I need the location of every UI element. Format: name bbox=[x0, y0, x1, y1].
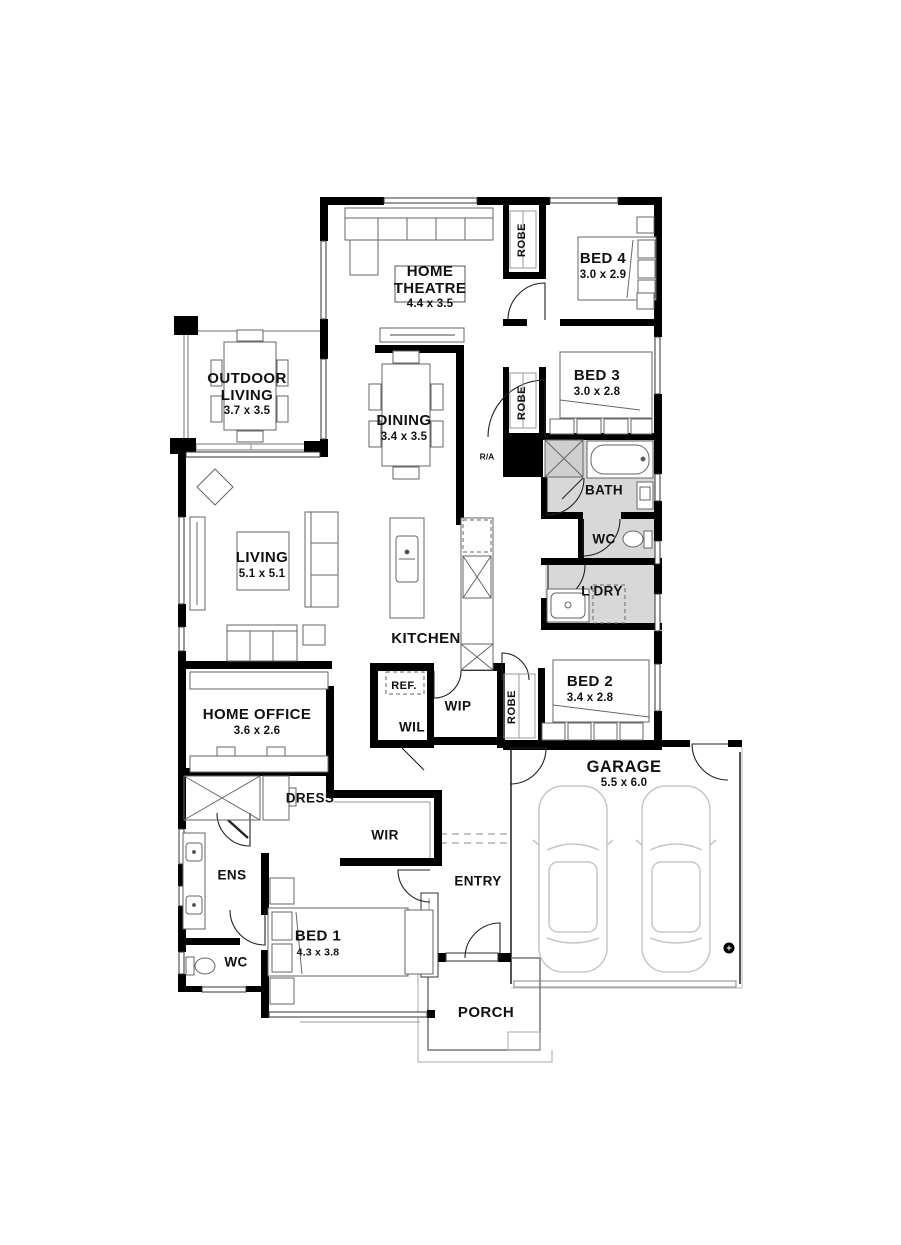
room-label-ens: ENS bbox=[218, 869, 247, 884]
room-label-bed2: BED 23.4 x 2.8 bbox=[567, 674, 614, 704]
room-label-wc2: WC bbox=[224, 956, 247, 971]
room-label-home-theatre: HOME THEATRE 4.4 x 3.5 bbox=[394, 264, 467, 311]
floor-plan-linework bbox=[0, 0, 901, 1245]
room-label-home-office: HOME OFFICE3.6 x 2.6 bbox=[203, 707, 312, 737]
floor-plan-canvas: HOME THEATRE 4.4 x 3.5 BED 43.0 x 2.9 BE… bbox=[0, 0, 901, 1245]
room-label-porch: PORCH bbox=[458, 1005, 514, 1022]
room-label-wc: WC bbox=[592, 533, 615, 548]
room-label-ref: REF. bbox=[391, 680, 416, 692]
wip-door bbox=[434, 671, 461, 698]
room-label-ldry: L'DRY bbox=[581, 585, 622, 600]
room-label-robe-3: ROBE bbox=[506, 690, 518, 724]
bed2-door bbox=[502, 653, 529, 680]
bed4-door bbox=[508, 283, 545, 320]
ens-shower-door bbox=[228, 820, 248, 838]
furniture bbox=[183, 208, 656, 1004]
room-label-robe-1: ROBE bbox=[516, 223, 528, 257]
room-label-wil: WIL bbox=[399, 721, 425, 736]
room-label-wip: WIP bbox=[445, 700, 472, 715]
outdoor-post-icon bbox=[174, 316, 198, 335]
ens-door bbox=[217, 813, 250, 846]
room-label-robe-2: ROBE bbox=[516, 386, 528, 420]
room-label-outdoor-living: OUTDOOR LIVING 3.7 x 3.5 bbox=[207, 371, 286, 418]
room-label-bed1: BED 14.3 x 3.8 bbox=[295, 929, 341, 958]
return-air-label: R/A bbox=[480, 452, 495, 461]
wc2-toilet bbox=[186, 957, 215, 975]
front-door-threshold bbox=[446, 953, 498, 961]
room-label-dining: DINING3.4 x 3.5 bbox=[377, 413, 432, 443]
wil-door bbox=[402, 748, 424, 770]
room-label-bed3: BED 33.0 x 2.8 bbox=[574, 368, 621, 398]
car bbox=[636, 786, 716, 972]
car bbox=[533, 786, 613, 972]
garage-cars bbox=[533, 786, 716, 972]
room-label-wir: WIR bbox=[371, 829, 398, 844]
garage-rear-door bbox=[692, 744, 728, 780]
room-label-kitchen: KITCHEN bbox=[391, 631, 460, 648]
garage-internal-door bbox=[510, 748, 546, 784]
driveway-dashes bbox=[440, 834, 511, 843]
ensuite-fixtures bbox=[183, 776, 260, 929]
room-label-entry: ENTRY bbox=[454, 875, 501, 890]
room-label-garage: GARAGE5.5 x 6.0 bbox=[587, 758, 662, 790]
room-label-bed4: BED 43.0 x 2.9 bbox=[580, 251, 627, 281]
wc-toilet bbox=[623, 531, 652, 548]
room-label-dress: DRESS bbox=[286, 792, 335, 807]
room-label-living: LIVING5.1 x 5.1 bbox=[236, 550, 288, 580]
room-label-bath: BATH bbox=[585, 484, 623, 499]
bed1-furniture bbox=[268, 878, 433, 1004]
